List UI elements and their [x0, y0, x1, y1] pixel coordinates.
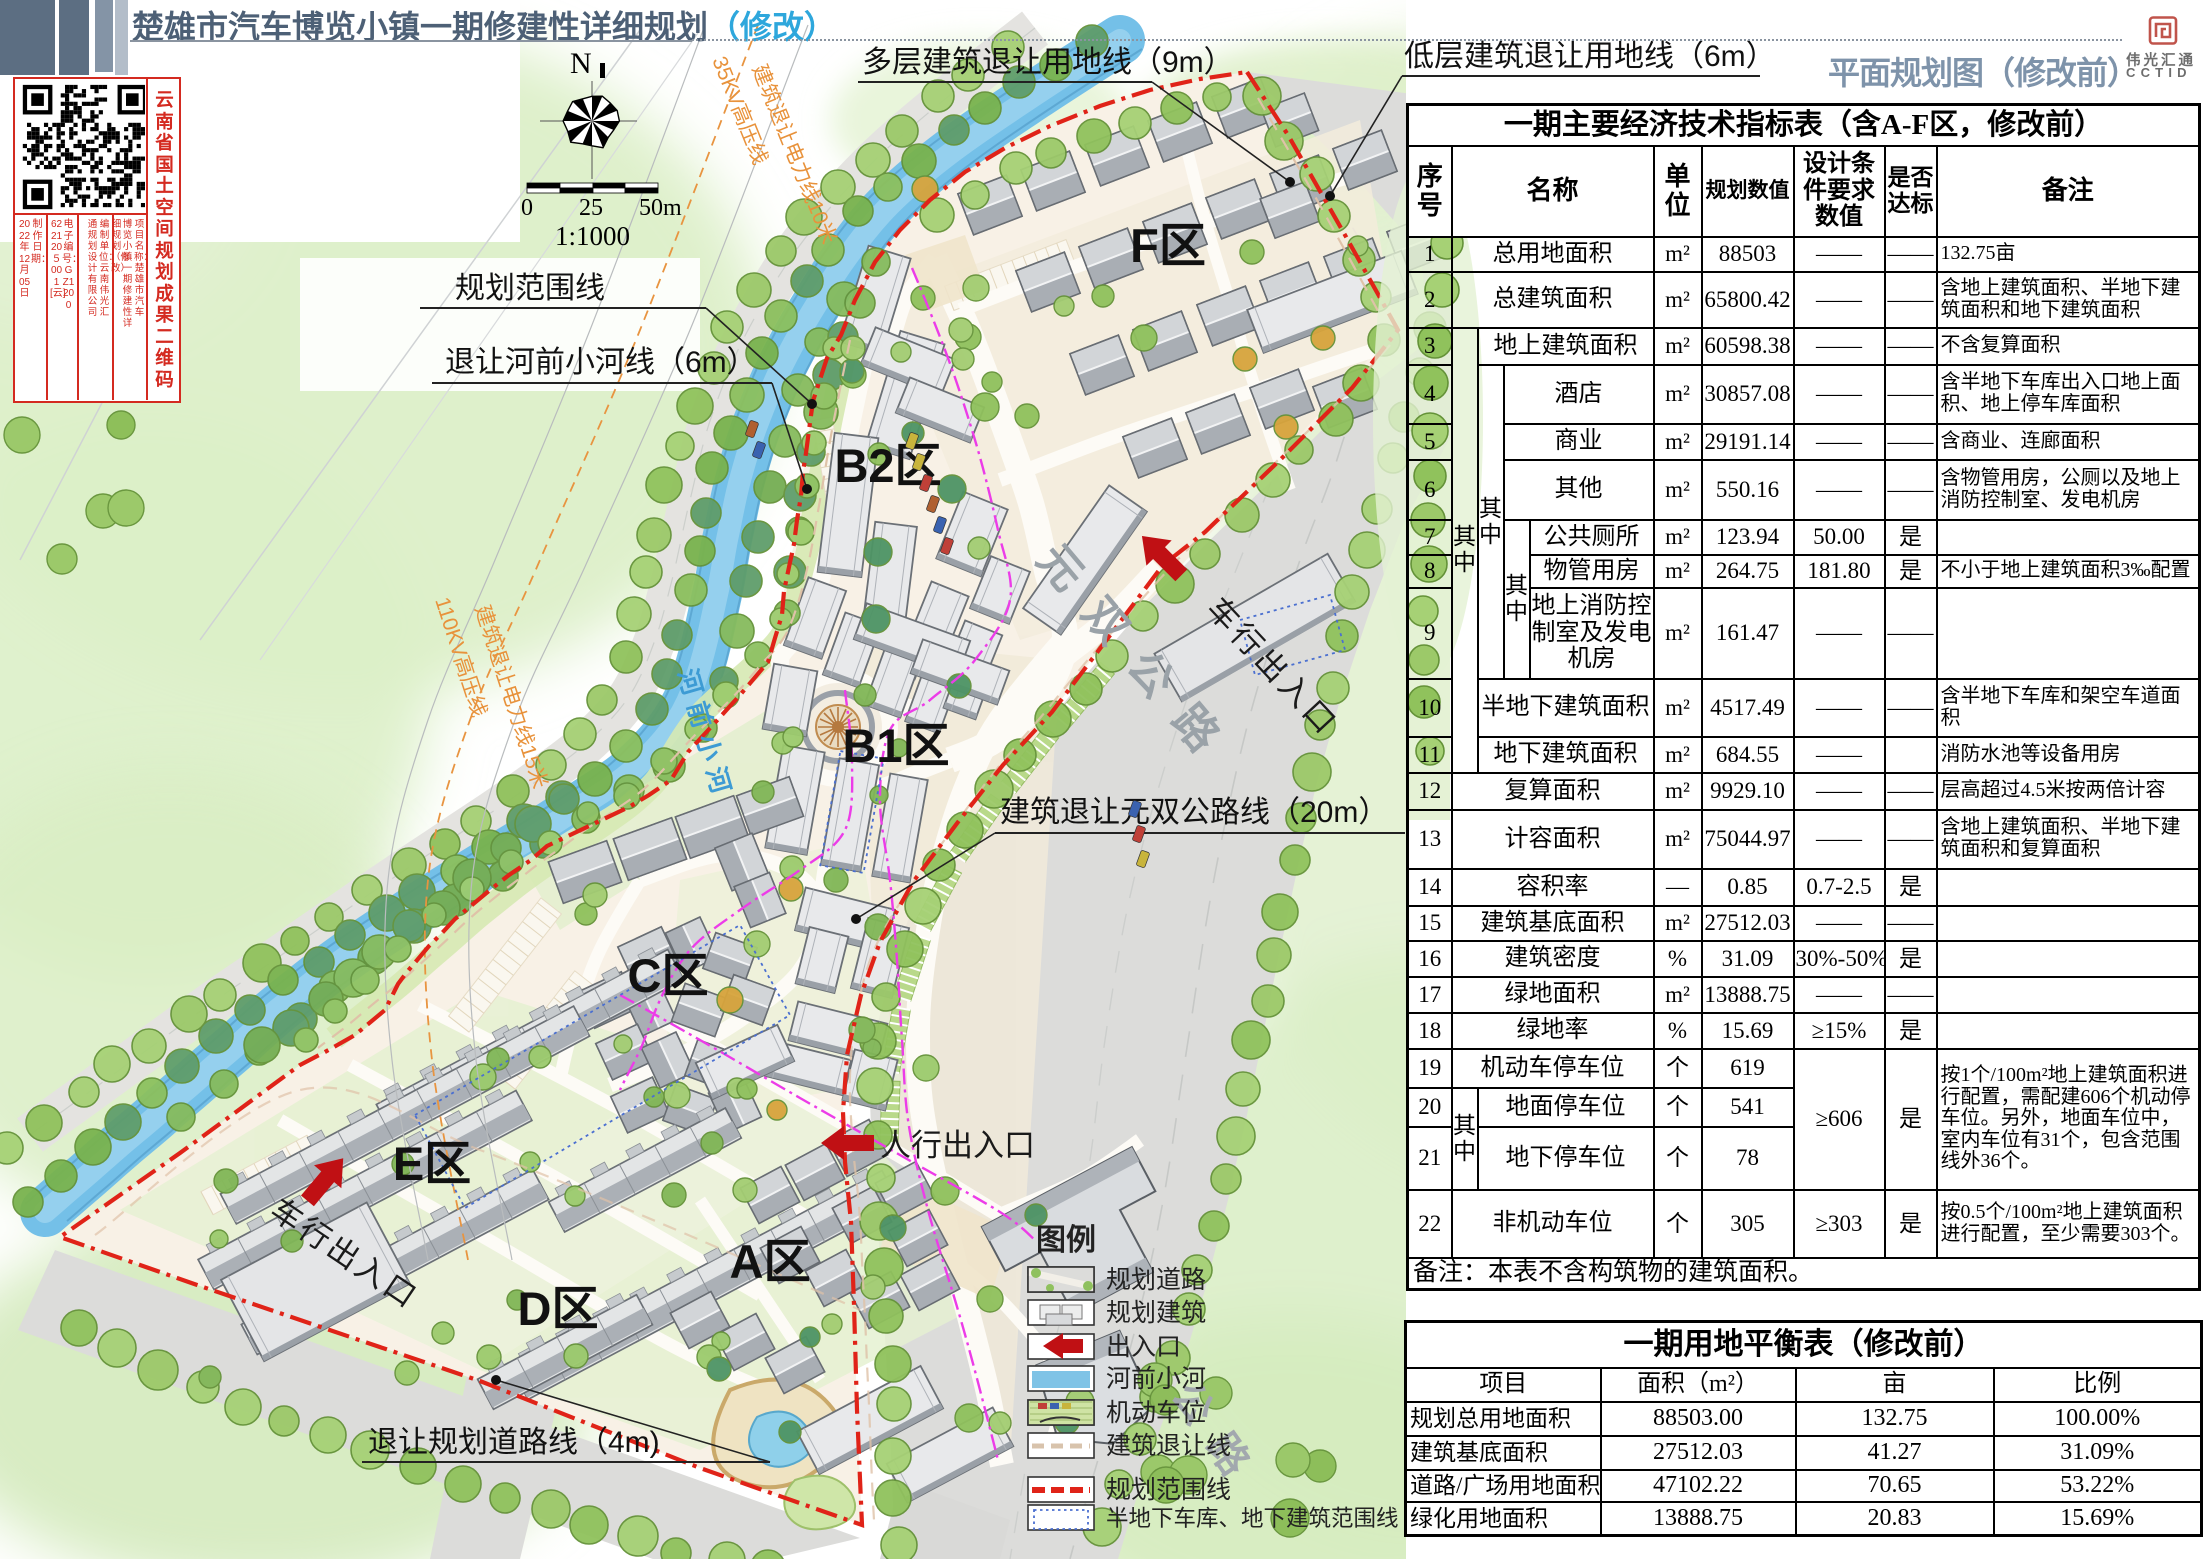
svg-text:50m: 50m [639, 195, 682, 221]
svg-text:D区: D区 [518, 1282, 599, 1335]
svg-text:规划建筑: 规划建筑 [1106, 1299, 1206, 1327]
svg-text:F区: F区 [1130, 219, 1206, 272]
svg-text:图例: 图例 [1036, 1224, 1096, 1257]
svg-text:机动车位: 机动车位 [1106, 1399, 1206, 1427]
svg-text:建筑退让元双公路线（20m）: 建筑退让元双公路线（20m） [1000, 796, 1388, 829]
svg-text:低层建筑退让用地线（6m）: 低层建筑退让用地线（6m） [1404, 40, 1776, 73]
svg-text:退让河前小河线（6m）: 退让河前小河线（6m） [445, 346, 757, 379]
svg-text:退让规划道路线（4m): 退让规划道路线（4m) [368, 1426, 660, 1459]
svg-text:半地下车库、地下建筑范围线: 半地下车库、地下建筑范围线 [1106, 1506, 1399, 1531]
svg-text:建筑退让线: 建筑退让线 [1106, 1432, 1231, 1460]
svg-text:规划道路: 规划道路 [1106, 1266, 1206, 1294]
svg-text:规划范围线: 规划范围线 [455, 272, 605, 305]
svg-text:E区: E区 [393, 1137, 471, 1190]
svg-text:1:1000: 1:1000 [555, 221, 630, 251]
svg-text:B1区: B1区 [842, 719, 949, 772]
svg-text:N: N [570, 47, 592, 80]
svg-text:规划范围线: 规划范围线 [1106, 1476, 1231, 1504]
svg-text:25: 25 [579, 195, 603, 221]
svg-text:人行出入口: 人行出入口 [880, 1128, 1035, 1163]
svg-text:出入口: 出入口 [1106, 1333, 1181, 1361]
svg-text:河前小河: 河前小河 [1106, 1365, 1206, 1393]
svg-text:C区: C区 [628, 949, 709, 1002]
svg-text:0: 0 [521, 195, 533, 221]
svg-text:多层建筑退让用地线（9m）: 多层建筑退让用地线（9m） [862, 46, 1234, 79]
svg-text:A区: A区 [730, 1235, 811, 1288]
